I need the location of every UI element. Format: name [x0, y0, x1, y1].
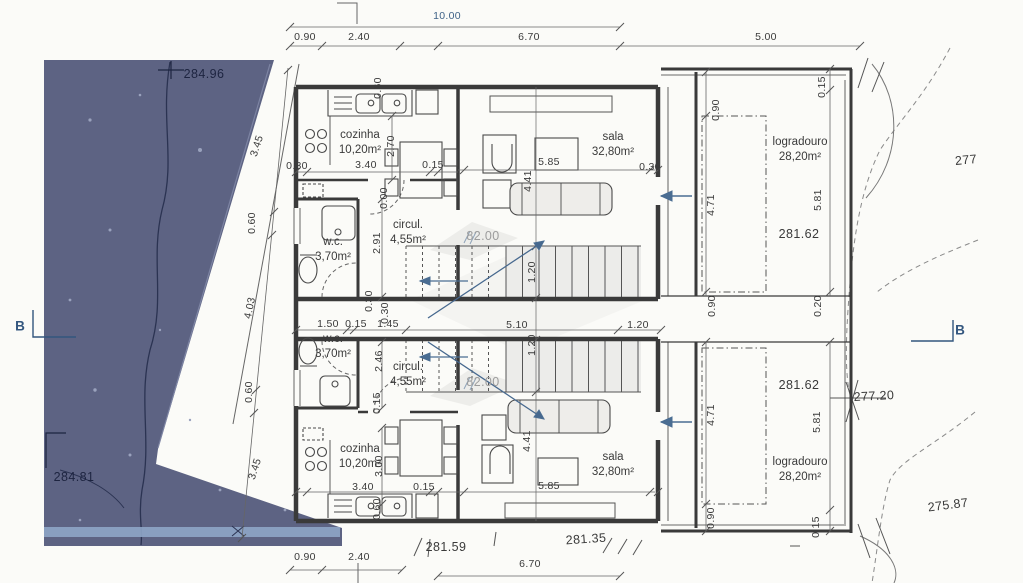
dimension-label: 0.90 [710, 99, 722, 121]
room-label-wc-lower: w.c.3,70m² [315, 332, 351, 362]
room-label-cozinha-lower: cozinha10,20m² [339, 442, 381, 472]
elevation-label: 82.00 [466, 375, 499, 389]
elevation-label: 275.87 [927, 496, 969, 515]
dimension-label: 0.60 [246, 212, 258, 234]
dimension-label: 0.30 [286, 160, 308, 172]
room-name: cozinha [340, 443, 380, 455]
elevation-label: 277 [954, 152, 977, 168]
dimension-label: 4.71 [705, 194, 717, 216]
dimension-label: 0.90 [294, 31, 316, 43]
dimension-label: 0.30 [639, 161, 661, 173]
room-name: sala [602, 131, 623, 143]
elevation-label: 281.35 [565, 531, 607, 548]
room-area: 3,70m² [315, 250, 351, 265]
dimension-label: 4.03 [242, 296, 258, 320]
dimension-label: 0.15 [810, 516, 822, 538]
dimension-label: 4.41 [521, 430, 533, 452]
dimension-label: 2.91 [371, 232, 383, 254]
dimension-label: 3.45 [248, 134, 266, 158]
room-name: logradouro [773, 136, 828, 148]
dimension-label: 0.00 [378, 187, 390, 209]
room-area: 10,20m² [339, 457, 381, 472]
dimension-label: 1.20 [526, 261, 538, 283]
elevation-label: 284.96 [184, 67, 225, 81]
room-name: circul. [393, 219, 423, 231]
section-marker: B [955, 323, 965, 338]
room-area: 28,20m² [773, 150, 828, 165]
room-area: 32,80m² [592, 145, 634, 160]
room-area: 4,55m² [390, 233, 426, 248]
dimension-label: 4.71 [705, 404, 717, 426]
dimension-label: 0.90 [294, 551, 316, 563]
dimension-label: 2.46 [373, 350, 385, 372]
dimension-label: 0.15 [371, 392, 383, 414]
dimension-label: 2.40 [348, 31, 370, 43]
dimension-label: 6.70 [518, 31, 540, 43]
room-name: circul. [393, 361, 423, 373]
section-marker: B [15, 319, 25, 334]
dimension-label: 5.81 [811, 411, 823, 433]
elevation-label: 281.62 [779, 227, 820, 241]
room-label-circul-upper: circul.4,55m² [390, 218, 426, 248]
dimension-label: 5.00 [755, 31, 777, 43]
dimension-label: 0.60 [371, 498, 383, 520]
dimension-label: 0.15 [345, 318, 367, 330]
room-label-logradouro-lower: logradouro28,20m² [773, 455, 828, 485]
dimension-label: 3.45 [246, 457, 264, 481]
dimension-label: 0.20 [812, 295, 824, 317]
room-name: sala [602, 451, 623, 463]
dimension-label: 0.15 [413, 481, 435, 493]
room-area: 4,55m² [390, 375, 426, 390]
dimension-label: 5.85 [538, 480, 560, 492]
dimension-label: 0.90 [706, 295, 718, 317]
dimension-label: 0.90 [705, 507, 717, 529]
dimension-label: 0.15 [422, 159, 444, 171]
room-label-sala-upper: sala32,80m² [592, 130, 634, 160]
dimension-label: 5.85 [538, 156, 560, 168]
dimension-label: 10.00 [433, 10, 461, 22]
dimension-label: 1.50 [317, 318, 339, 330]
floor-plan-page: 10.000.902.406.705.000.902.406.703.450.6… [0, 0, 1023, 583]
dimension-label: 5.81 [812, 189, 824, 211]
dimension-label: 3.40 [352, 481, 374, 493]
dimension-label: 6.70 [519, 558, 541, 570]
room-label-circul-lower: circul.4,55m² [390, 360, 426, 390]
room-label-logradouro-upper: logradouro28,20m² [773, 135, 828, 165]
elevation-label: 277.20 [853, 388, 894, 404]
dimension-label: 1.20 [627, 319, 649, 331]
dimension-label: 3.40 [355, 159, 377, 171]
dimension-label: 0.30 [379, 302, 391, 324]
room-name: cozinha [340, 129, 380, 141]
dimension-label: 5.10 [506, 319, 528, 331]
room-label-wc-upper: w.c.3,70m² [315, 235, 351, 265]
elevation-label: 82.00 [466, 229, 499, 243]
room-name: w.c. [323, 236, 343, 248]
room-label-cozinha-upper: cozinha10,20m² [339, 128, 381, 158]
labels-layer: 10.000.902.406.705.000.902.406.703.450.6… [0, 0, 1023, 583]
room-label-sala-lower: sala32,80m² [592, 450, 634, 480]
elevation-label: 281.62 [779, 378, 820, 392]
dimension-label: 1.20 [526, 334, 538, 356]
dimension-label: 0.15 [816, 76, 828, 98]
dimension-label: 2.70 [385, 135, 397, 157]
room-name: logradouro [773, 456, 828, 468]
dimension-label: 4.41 [522, 170, 534, 192]
room-area: 3,70m² [315, 347, 351, 362]
dimension-label: 0.60 [372, 77, 384, 99]
elevation-label: 281.59 [426, 540, 467, 554]
dimension-label: 0.60 [243, 381, 255, 403]
dimension-label: 2.40 [348, 551, 370, 563]
dimension-label: 0.30 [363, 290, 375, 312]
room-area: 28,20m² [773, 470, 828, 485]
room-name: w.c. [323, 333, 343, 345]
room-area: 10,20m² [339, 143, 381, 158]
room-area: 32,80m² [592, 465, 634, 480]
elevation-label: 284.81 [54, 470, 95, 484]
